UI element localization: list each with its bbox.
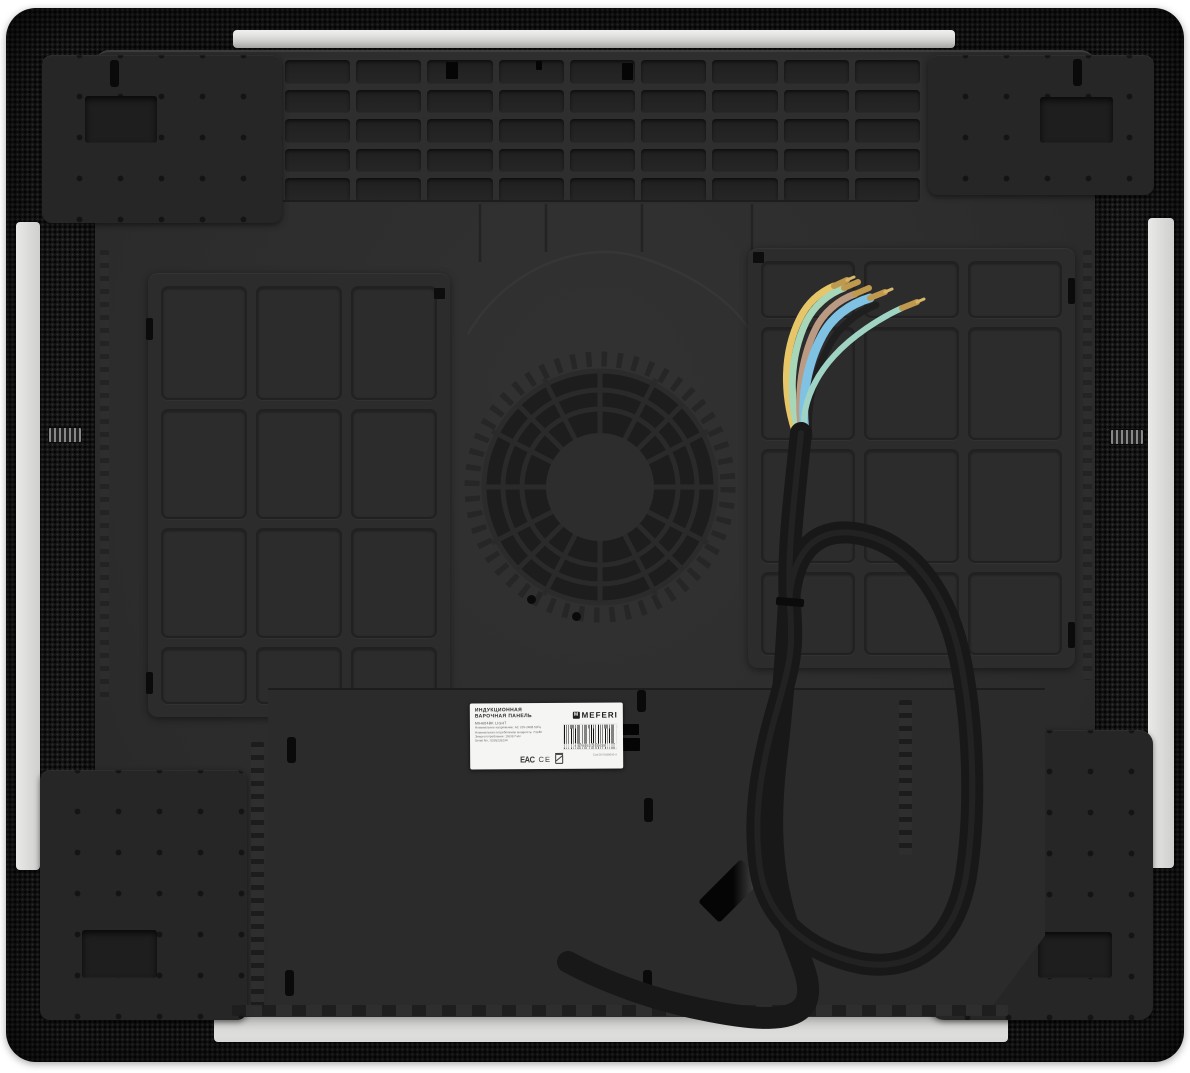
coil-cover-cell xyxy=(161,528,247,638)
coil-cover-cell xyxy=(256,286,342,400)
coil-cover-cell xyxy=(761,261,855,318)
cover-clip xyxy=(146,318,153,340)
product-photo-induction-hob-underside: ИНДУКЦИОННАЯ ВАРОЧНАЯ ПАНЕЛЬ MIH604BK LI… xyxy=(0,0,1190,1073)
coil-cover-cell xyxy=(351,286,437,400)
coil-cover-cell xyxy=(161,409,247,519)
fan-hub xyxy=(546,433,654,541)
rating-label: ИНДУКЦИОННАЯ ВАРОЧНАЯ ПАНЕЛЬ MIH604BK LI… xyxy=(470,702,623,769)
coil-cover-cell xyxy=(864,327,958,441)
cover-screw-mark xyxy=(434,288,445,299)
mounting-plate-bottom-left xyxy=(40,770,247,1020)
cover-clip xyxy=(1068,622,1075,648)
mounting-plate-top-left xyxy=(42,55,282,223)
plate-cutout xyxy=(82,930,157,978)
plate-cutout xyxy=(1038,932,1112,978)
coil-cover-cell xyxy=(761,449,855,563)
meferi-logo-icon: M xyxy=(573,712,580,719)
bottom-junction-panel xyxy=(268,688,1045,1014)
coil-cover-cell xyxy=(761,327,855,441)
mounting-plate-top-right xyxy=(928,55,1154,195)
coil-cover-cell xyxy=(256,409,342,519)
coil-cover-cell xyxy=(864,261,958,318)
panel-slot xyxy=(637,690,646,712)
spring-clip-left xyxy=(48,427,82,443)
barcode-code: Cod:0070598656-A xyxy=(593,753,617,757)
cover-clip xyxy=(1068,278,1075,304)
spring-clip-right xyxy=(1110,429,1144,445)
panel-slot xyxy=(285,970,294,996)
panel-slot xyxy=(644,798,653,822)
meferi-wordmark: MEFERI xyxy=(582,711,618,720)
rib-comb-left xyxy=(251,742,264,1008)
plate-slot xyxy=(110,60,119,87)
weee-bin-icon xyxy=(555,754,563,764)
rib-comb-right xyxy=(899,700,912,855)
coil-cover-cell xyxy=(161,647,247,704)
coil-cover-cell xyxy=(351,528,437,638)
coil-cover-cell xyxy=(256,528,342,638)
plate-slot xyxy=(1073,59,1082,86)
cooling-fan xyxy=(450,337,750,637)
pan-edge-tabs-right xyxy=(1083,250,1092,680)
ce-mark: CE xyxy=(538,754,550,763)
coil-cover-cell xyxy=(968,572,1062,655)
barcode-number: 4 679262 251438 xyxy=(563,744,617,748)
coil-cover-right xyxy=(748,248,1075,668)
plate-cutout xyxy=(85,96,157,143)
cover-clip xyxy=(146,672,153,694)
panel-slot xyxy=(287,737,296,763)
screw-hole xyxy=(572,612,581,621)
eac-mark: EAC xyxy=(520,754,534,764)
coil-cover-cell xyxy=(968,449,1062,563)
pan-edge-tabs-left xyxy=(100,250,109,700)
coil-cover-left xyxy=(148,273,450,717)
screw-hole xyxy=(527,595,536,604)
plate-cutout xyxy=(1040,97,1113,143)
coil-cover-cell xyxy=(761,572,855,655)
pan-bottom-rib xyxy=(232,1005,1008,1016)
coil-cover-cell xyxy=(968,261,1062,318)
coil-cover-cell xyxy=(968,327,1062,441)
coil-cover-cell xyxy=(351,409,437,519)
coil-cover-cell xyxy=(864,572,958,655)
coil-cover-cell xyxy=(161,286,247,400)
panel-slot xyxy=(643,970,652,996)
coil-cover-cell xyxy=(864,449,958,563)
certification-marks: EAC CE xyxy=(520,754,563,764)
cover-screw-mark xyxy=(753,252,764,263)
